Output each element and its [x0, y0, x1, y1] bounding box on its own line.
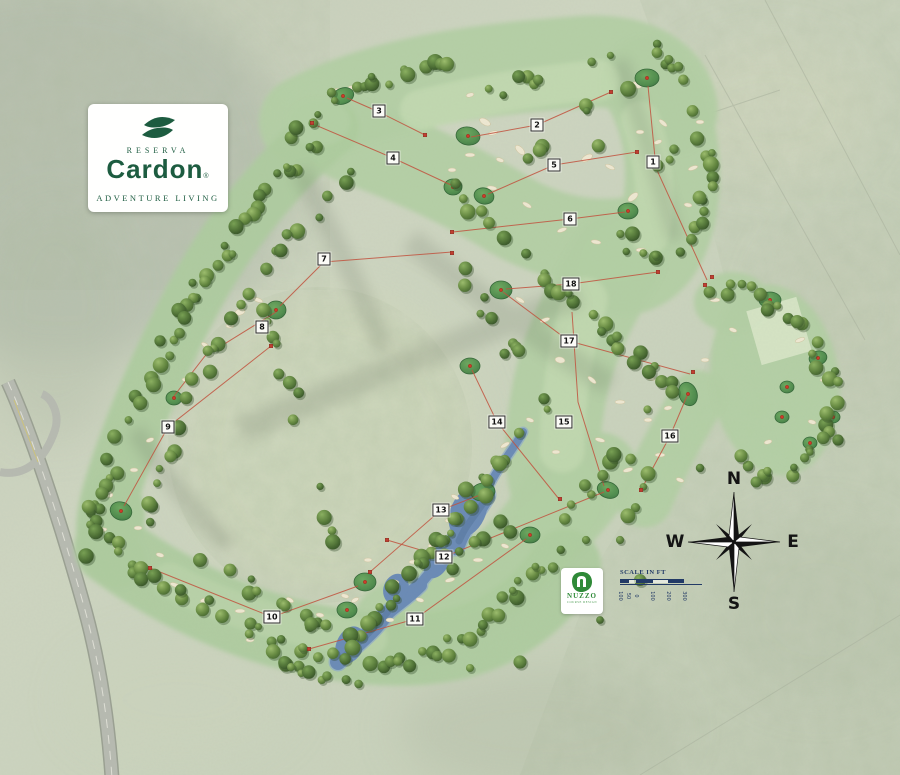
scale-segment: [668, 579, 684, 583]
nuzzo-leaf-icon: [571, 571, 593, 593]
registered-mark: ®: [203, 173, 209, 180]
cardon-wordmark: Cardon®: [88, 156, 228, 190]
nuzzo-logo-card: NUZZO COURSE DESIGN: [561, 568, 603, 614]
scale-label-1: 50: [625, 593, 631, 599]
cardon-name-text: Cardon: [106, 154, 203, 184]
scale-label-0: 100: [617, 591, 623, 601]
cardon-leaf-icon: [136, 114, 180, 144]
nuzzo-name: NUZZO: [561, 593, 603, 600]
scale-segment: [620, 579, 628, 583]
compass-north-label: N: [727, 469, 741, 489]
compass-west-label: W: [666, 532, 685, 552]
cardon-logo-card: RESERVA Cardon® ADVENTURE LIVING: [88, 104, 228, 212]
scale-bar-labels: 100500100200300: [620, 585, 710, 601]
scale-segment: [636, 579, 652, 583]
scale-label-5: 300: [681, 591, 687, 601]
scale-label-2: 0: [633, 594, 639, 597]
scale-label-4: 200: [665, 591, 671, 601]
scale-bar: SCALE IN FT 100500100200300: [620, 569, 730, 621]
nuzzo-tagline: COURSE DESIGN: [561, 600, 603, 604]
scale-title: SCALE IN FT: [620, 569, 730, 576]
scale-label-3: 100: [649, 591, 655, 601]
compass-east-label: E: [787, 532, 799, 552]
adventure-living-label: ADVENTURE LIVING: [88, 193, 228, 203]
golf-course-master-plan: 123456789101112131415161718 RESERVA Card…: [0, 0, 900, 775]
